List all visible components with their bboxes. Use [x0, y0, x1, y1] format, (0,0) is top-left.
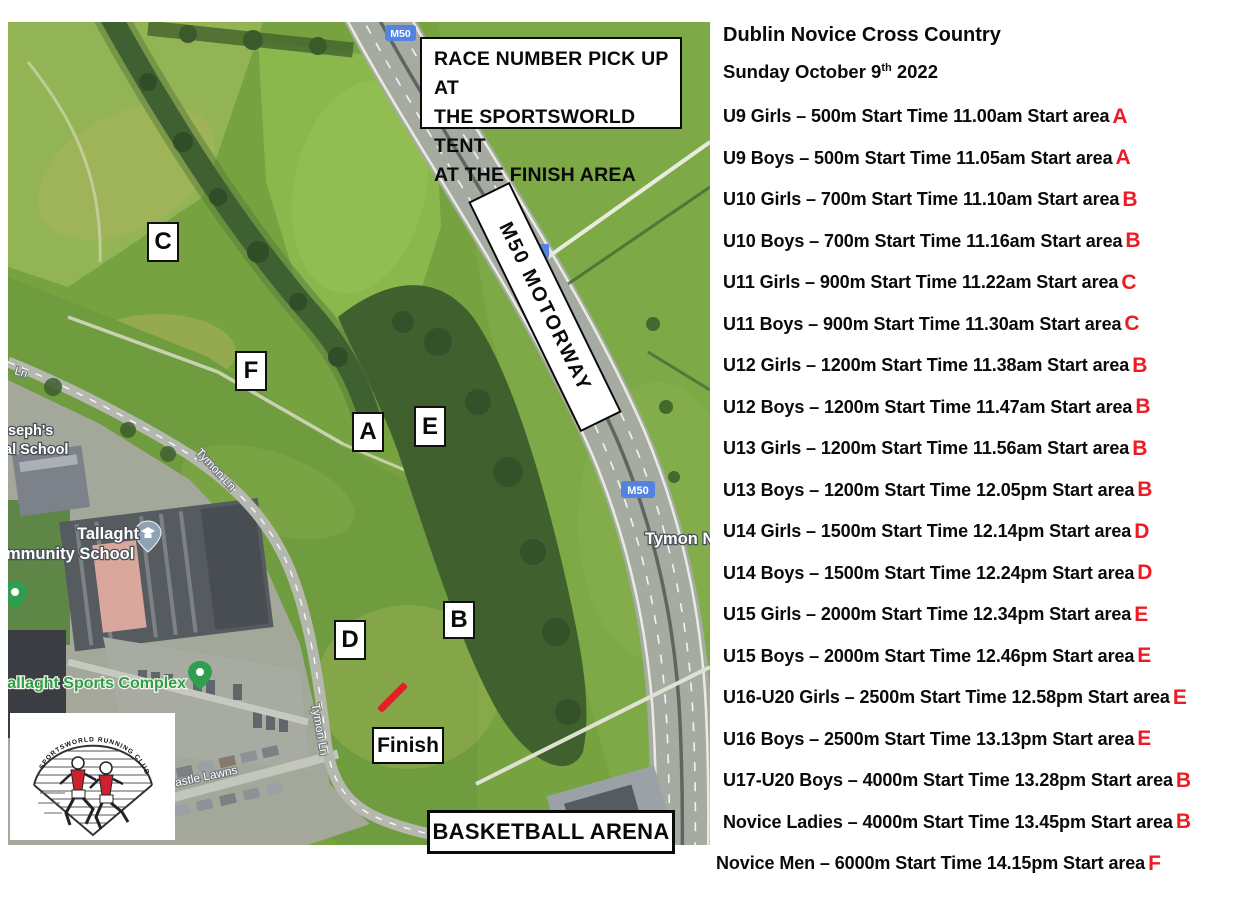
start-area-letter: E [1137, 727, 1151, 751]
schedule-row: Novice Men – 6000m Start Time 14.15pm St… [716, 843, 1191, 885]
start-area-letter: B [1132, 354, 1147, 378]
schedule-row: U16-U20 Girls – 2500m Start Time 12.58pm… [723, 677, 1191, 719]
start-area-letter: A [1112, 105, 1127, 129]
m50-shield-lower-label: M50 [627, 485, 648, 497]
schedule-row: U14 Boys – 1500m Start Time 12.24pm Star… [723, 553, 1191, 595]
schedule-row: U17-U20 Boys – 4000m Start Time 13.28pm … [723, 760, 1191, 802]
race-note-line1: RACE NUMBER PICK UP AT [434, 45, 680, 103]
schedule-row: U15 Boys – 2000m Start Time 12.46pm Star… [723, 636, 1191, 678]
start-area-letter: C [1121, 271, 1136, 295]
schedule-row: U10 Boys – 700m Start Time 11.16am Start… [723, 221, 1191, 263]
race-note-line2: THE SPORTSWORLD TENT [434, 103, 680, 161]
schedule-row: U16 Boys – 2500m Start Time 13.13pm Star… [723, 719, 1191, 761]
start-area-letter: B [1132, 437, 1147, 461]
start-area-letter: A [1116, 146, 1131, 170]
event-date-pre: Sunday October 9 [723, 61, 881, 82]
start-area-letter: B [1137, 478, 1152, 502]
start-area-letter: B [1176, 769, 1191, 793]
start-area-letter: E [1137, 644, 1151, 668]
club-logo: SPORTSWORLD RUNNING CLUB [10, 713, 175, 840]
event-date: Sunday October 9th 2022 [723, 61, 938, 83]
schedule-row: U10 Girls – 700m Start Time 11.10am Star… [723, 179, 1191, 221]
start-area-letter: B [1176, 810, 1191, 834]
start-area-marker-f: F [235, 351, 267, 391]
schedule-row: U13 Boys – 1200m Start Time 12.05pm Star… [723, 470, 1191, 512]
start-area-marker-d: D [334, 620, 366, 660]
start-area-marker-b: B [443, 601, 475, 639]
josephs-label-line1: seph's [8, 423, 53, 439]
m50-shield-lower: M50 [621, 481, 655, 498]
start-area-letter: C [1124, 312, 1139, 336]
schedule-row: U13 Girls – 1200m Start Time 11.56am Sta… [723, 428, 1191, 470]
start-area-letter: F [1148, 852, 1161, 876]
race-number-note: RACE NUMBER PICK UP AT THE SPORTSWORLD T… [420, 37, 682, 129]
sports-complex-label: allaght Sports Complex [8, 675, 186, 692]
start-area-letter: B [1125, 229, 1140, 253]
start-area-marker-c: C [147, 222, 179, 262]
finish-label: Finish [372, 727, 444, 764]
school-building [59, 498, 273, 651]
m50-shield-top: M50 [385, 25, 416, 41]
start-area-marker-e: E [414, 406, 446, 447]
schedule-row: U15 Girls – 2000m Start Time 12.34pm Sta… [723, 594, 1191, 636]
m50-shield-top-label: M50 [390, 28, 411, 40]
event-date-ordinal: th [881, 62, 891, 74]
schedule-rows: U9 Girls – 500m Start Time 11.00am Start… [723, 96, 1191, 885]
schedule-row: Novice Ladies – 4000m Start Time 13.45pm… [723, 802, 1191, 844]
school-label-line1: Tallaght [77, 525, 140, 543]
start-area-letter: B [1122, 188, 1137, 212]
schedule-row: U12 Boys – 1200m Start Time 11.47am Star… [723, 387, 1191, 429]
schedule-row: U9 Boys – 500m Start Time 11.05am Start … [723, 138, 1191, 180]
start-area-letter: D [1134, 520, 1149, 544]
tymon-n-label: Tymon N [645, 530, 710, 548]
start-area-marker-a: A [352, 412, 384, 452]
josephs-label-line2: al School [8, 442, 68, 458]
basketball-arena-label: BASKETBALL ARENA [427, 810, 675, 854]
race-flyer: M50 M50 Tallaght mmuni [0, 0, 1256, 904]
race-note-line3: AT THE FINISH AREA [434, 161, 680, 190]
schedule-row: U11 Boys – 900m Start Time 11.30am Start… [723, 304, 1191, 346]
schedule-row: U11 Girls – 900m Start Time 11.22am Star… [723, 262, 1191, 304]
schedule-row: U9 Girls – 500m Start Time 11.00am Start… [723, 96, 1191, 138]
start-area-letter: D [1137, 561, 1152, 585]
schedule-row: U12 Girls – 1200m Start Time 11.38am Sta… [723, 345, 1191, 387]
event-title: Dublin Novice Cross Country [723, 24, 1001, 47]
start-area-letter: E [1134, 603, 1148, 627]
event-date-post: 2022 [892, 61, 938, 82]
start-area-letter: E [1173, 686, 1187, 710]
schedule-row: U14 Girls – 1500m Start Time 12.14pm Sta… [723, 511, 1191, 553]
start-area-letter: B [1135, 395, 1150, 419]
school-label-line2: mmunity School [8, 545, 134, 563]
